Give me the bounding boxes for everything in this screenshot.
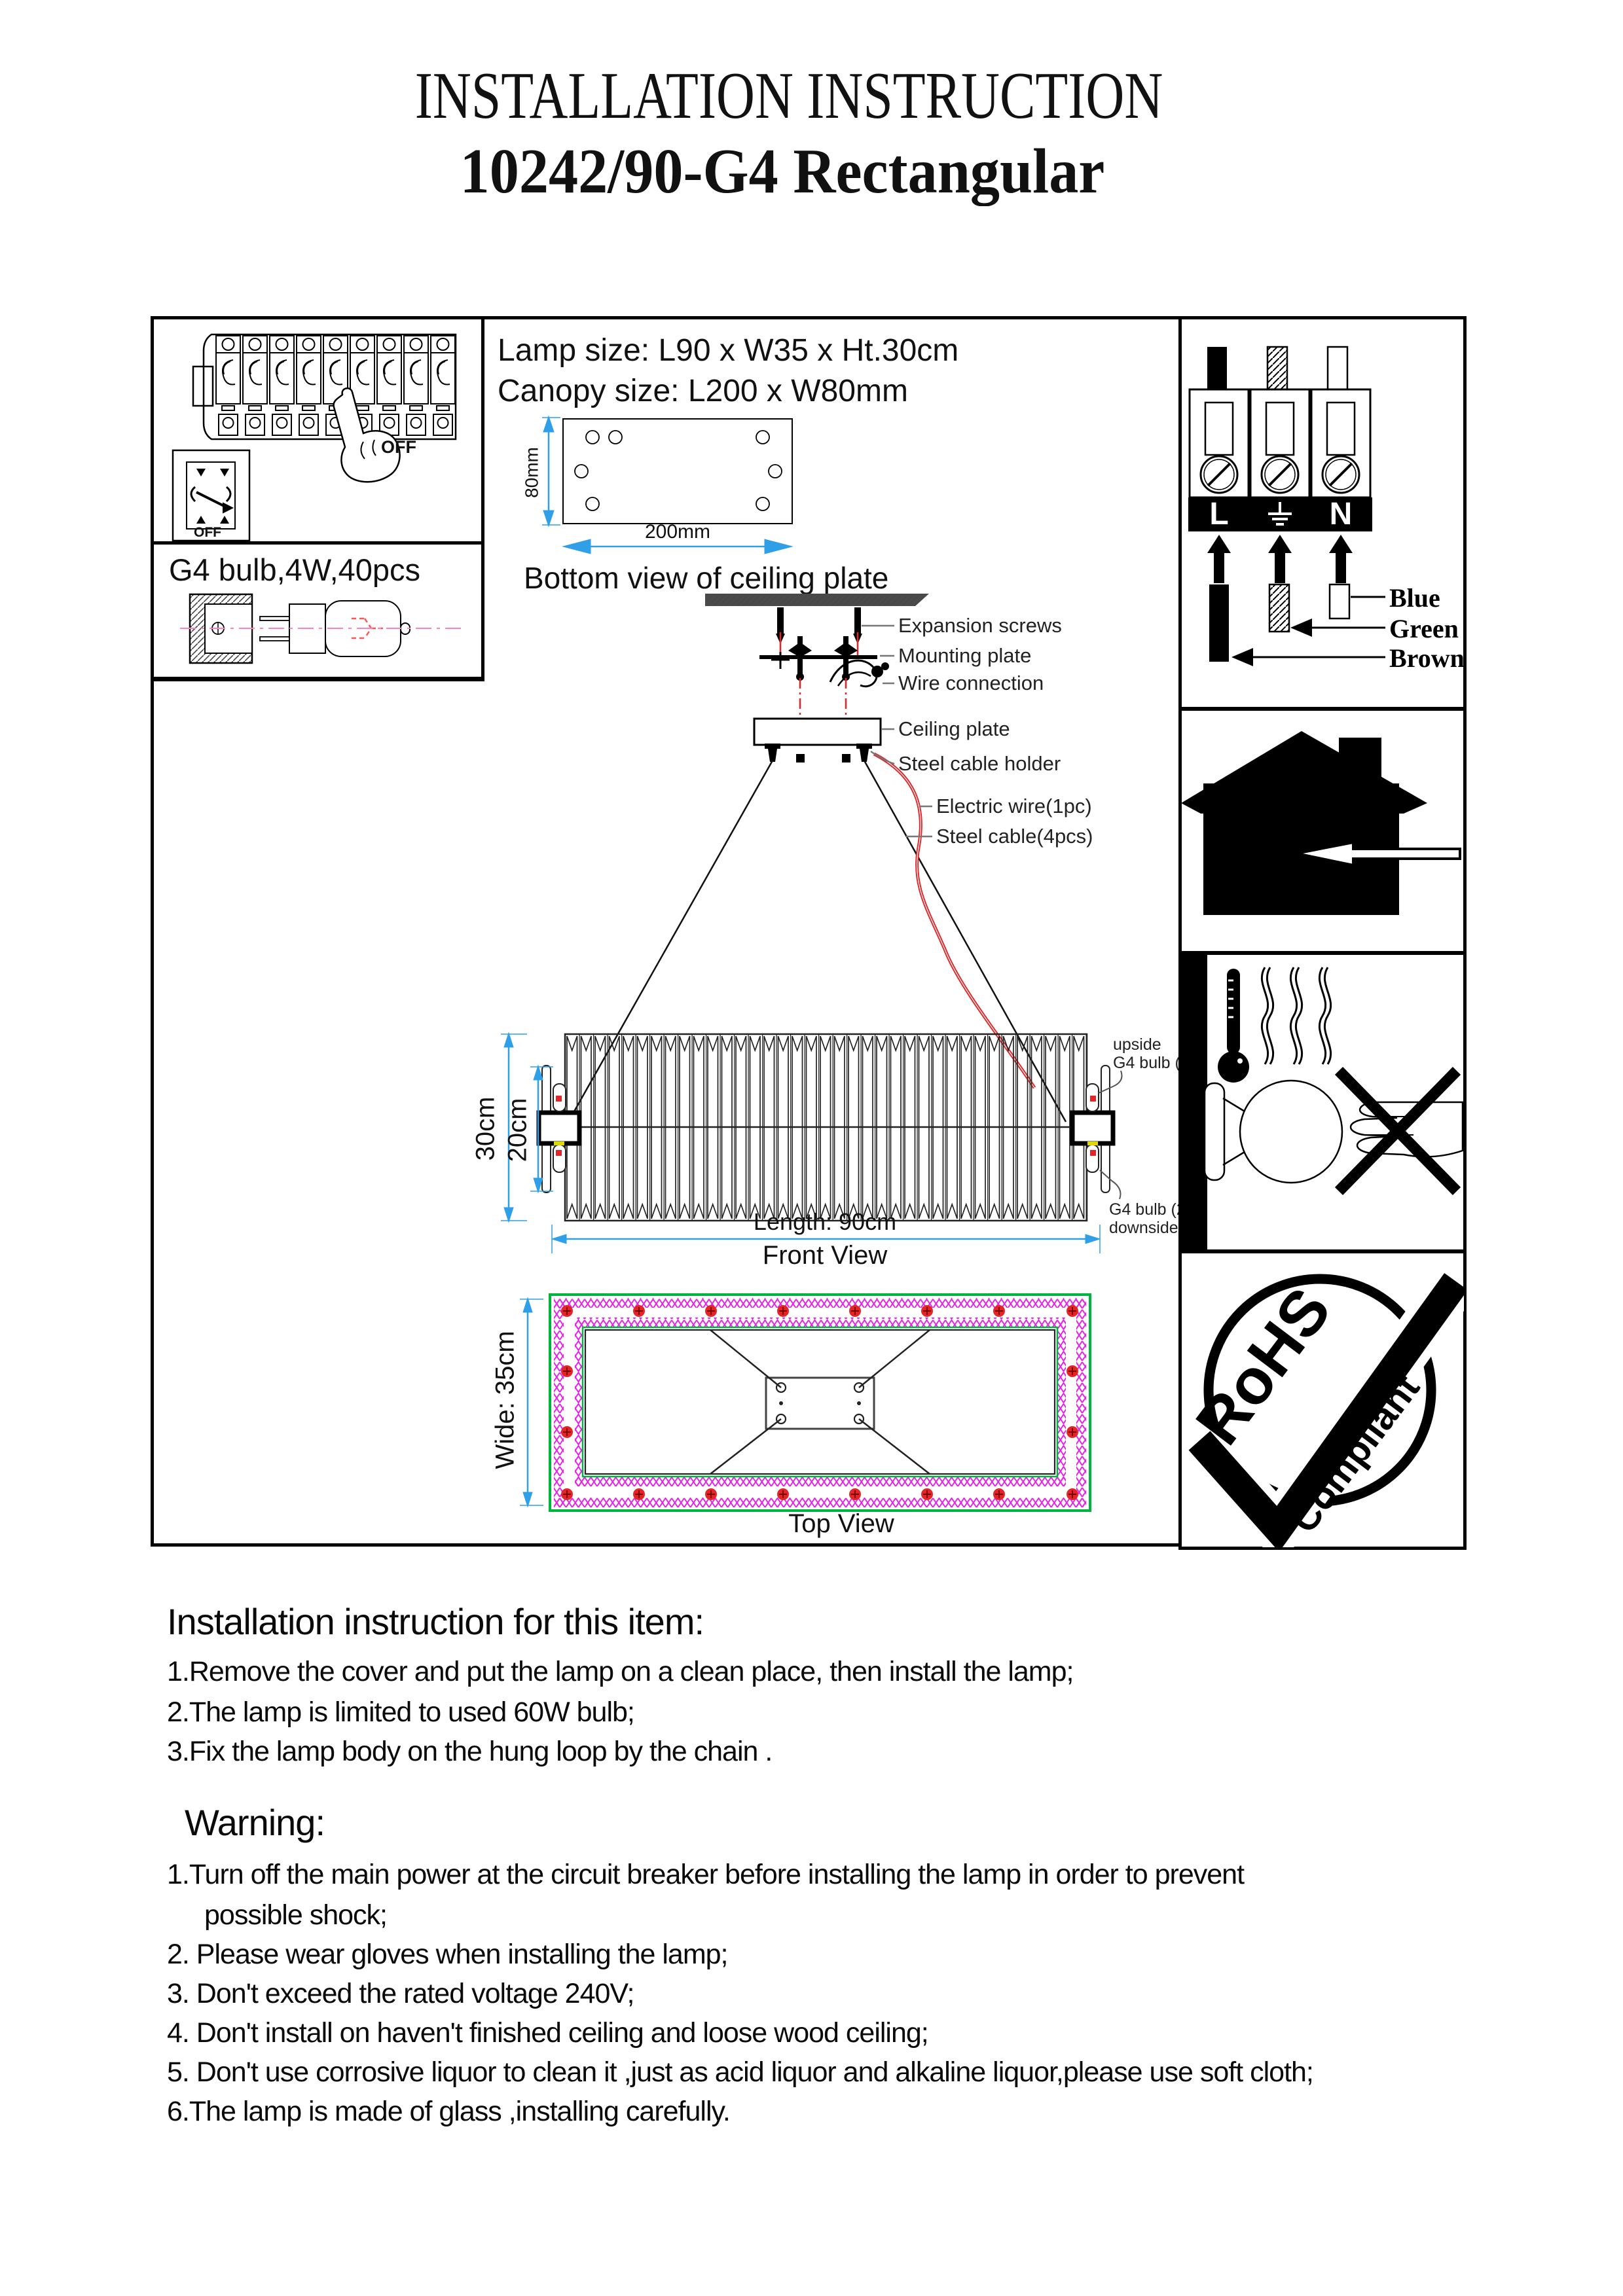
wire-connection-icon (830, 660, 889, 687)
instruction-item-1: 1.Remove the cover and put the lamp on a… (167, 1656, 1074, 1688)
front-height-dim: 30cm (471, 1080, 501, 1178)
label-electric-wire: Electric wire(1pc) (936, 795, 1092, 818)
bulb-spec-label: G4 bulb,4W,40pcs (169, 552, 420, 588)
terminal-live-label: L (1199, 496, 1239, 532)
hot-bulb-warning-icon (1181, 954, 1464, 1250)
label-steel-cable: Steel cable(4pcs) (936, 825, 1093, 848)
top-view-dimension (520, 1298, 543, 1507)
warning-heading: Warning: (185, 1801, 325, 1844)
circuit-breaker-icon (157, 327, 484, 543)
instructions-heading: Installation instruction for this item: (167, 1600, 704, 1643)
house-icon (1181, 710, 1464, 952)
instruction-sheet: INSTALLATION INSTRUCTION 10242/90-G4 Rec… (0, 0, 1623, 2296)
instruction-item-3: 3.Fix the lamp body on the hung loop by … (167, 1736, 772, 1768)
expansion-screws-icon (776, 607, 862, 644)
warning-line-6: 6.The lamp is made of glass ,installing … (167, 2096, 730, 2128)
label-mounting-plate: Mounting plate (898, 644, 1031, 668)
warning-line-3: 3. Don't exceed the rated voltage 240V; (167, 1978, 634, 2010)
hot-bulb-icon (1205, 1081, 1342, 1183)
rohs-logo: RoHS Compliant (1181, 1253, 1464, 1547)
model-number: 10242/90-G4 Rectangular (55, 135, 1510, 207)
lamp-size-label: Lamp size: L90 x W35 x Ht.30cm (498, 332, 958, 368)
label-cable-holder: Steel cable holder (898, 752, 1061, 776)
heat-waves-icon (1262, 967, 1330, 1064)
warning-line-5: 5. Don't use corrosive liquor to clean i… (167, 2056, 1313, 2089)
ceiling-plate-icon (754, 719, 881, 745)
breaker-off-label: OFF (381, 437, 416, 457)
rohs-word1: RoHS (1182, 1274, 1344, 1457)
terminal-neutral-label: N (1321, 496, 1360, 532)
g4-bulb-icon (180, 584, 462, 673)
switch-off-label: OFF (194, 525, 221, 541)
front-view-caption: Front View (694, 1241, 956, 1270)
instruction-item-2: 2.The lamp is limited to used 60W bulb; (167, 1696, 634, 1729)
lamp-diagram (484, 576, 1188, 1551)
front-inner-dim: 20cm (503, 1081, 533, 1179)
top-wide-dim: Wide: 35cm (491, 1338, 520, 1469)
label-wire-connection: Wire connection (898, 672, 1044, 695)
page-title: INSTALLATION INSTRUCTION (158, 58, 1420, 134)
thermometer-icon (1218, 969, 1249, 1083)
top-view-caption: Top View (710, 1509, 972, 1539)
label-ceiling-plate: Ceiling plate (898, 717, 1010, 741)
warning-line-1: 1.Turn off the main power at the circuit… (167, 1859, 1244, 1891)
cable-holders-icon (765, 744, 872, 762)
warning-line-4: 4. Don't install on haven't finished cei… (167, 2017, 928, 2049)
warning-line-1b: possible shock; (204, 1899, 387, 1931)
plate-height-dim: 80mm (522, 445, 543, 501)
wiring-arrows (1207, 535, 1353, 583)
divider-bulb (151, 677, 484, 681)
wire-green-label: Green (1389, 613, 1459, 644)
front-length-dim: Length: 90cm (694, 1208, 956, 1236)
canopy-size-label: Canopy size: L200 x W80mm (498, 373, 908, 409)
warning-line-2: 2. Please wear gloves when installing th… (167, 1939, 728, 1971)
wire-brown-label: Brown (1389, 643, 1465, 673)
wire-blue-label: Blue (1389, 583, 1440, 613)
label-expansion-screws: Expansion screws (898, 614, 1062, 637)
plate-length-dim: 200mm (625, 521, 730, 543)
